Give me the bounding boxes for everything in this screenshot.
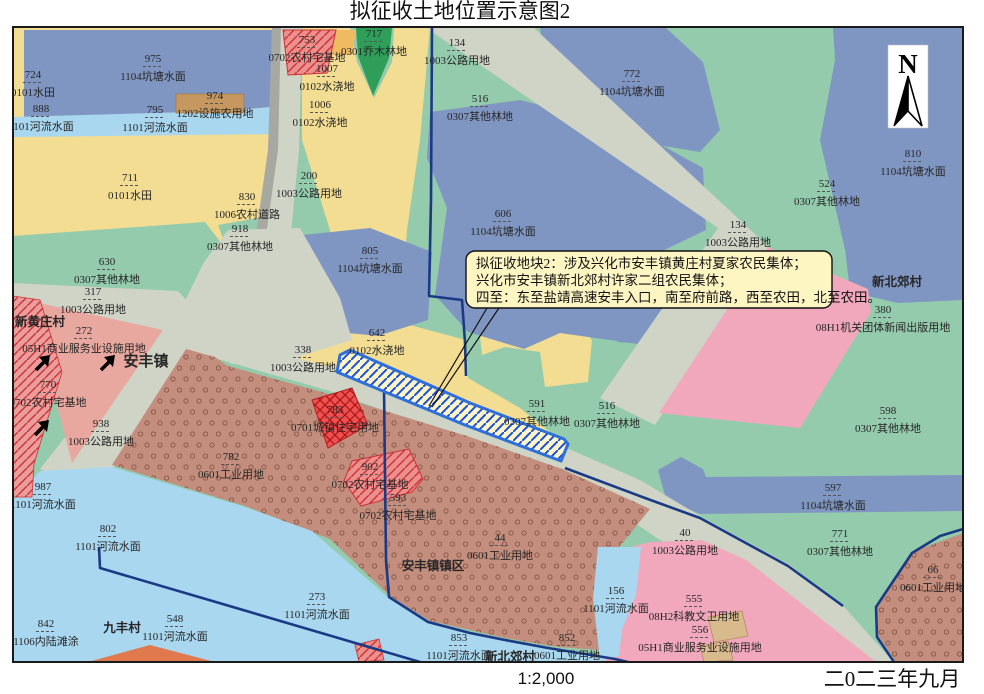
parcel-number: 273 [309, 591, 326, 603]
parcel-landuse: 1101河流水面 [426, 648, 492, 662]
parcel-number: 524 [819, 178, 836, 190]
parcel-landuse: 1106内陆滩涂 [13, 634, 79, 648]
parcel-landuse: 0307其他林地 [447, 109, 513, 123]
parcel-landuse: 0701城镇住宅用地 [291, 420, 379, 434]
parcel-landuse: 0301乔木林地 [341, 44, 407, 58]
parcel-number: 606 [495, 208, 512, 220]
parcel-number: 853 [451, 632, 468, 644]
parcel-landuse: 0102水浇地 [350, 344, 405, 357]
north-arrow: N [888, 45, 928, 128]
parcel-landuse: 1101河流水面 [10, 497, 76, 511]
parcel-landuse: 0601工业用地 [900, 581, 966, 594]
parcel-number: 902 [362, 461, 379, 473]
parcel-number: 810 [905, 148, 922, 160]
parcel-number: 44 [495, 532, 507, 544]
parcel-number: 134 [449, 37, 466, 49]
parcel-number: 888 [33, 103, 50, 115]
parcel-number: 40 [680, 527, 692, 539]
parcel-number: 380 [875, 304, 892, 316]
parcel-number: 783 [327, 404, 344, 416]
parcel-landuse: 1003公路用地 [60, 303, 126, 316]
parcel-landuse: 1104坑塘水面 [800, 498, 866, 512]
parcel-landuse: 08H1机关团体新闻出版用地 [816, 320, 950, 334]
parcel-landuse: 0307其他林地 [794, 194, 860, 208]
parcel-landuse: 1101河流水面 [8, 119, 74, 133]
parcel-landuse: 1202设施农用地 [177, 106, 254, 120]
parcel-landuse: 1003公路用地 [68, 435, 134, 448]
parcel-number: 272 [76, 325, 93, 337]
parcel-landuse: 0307其他林地 [74, 272, 140, 286]
parcel-landuse: 0307其他林地 [504, 414, 570, 428]
parcel-landuse: 1101河流水面 [122, 120, 188, 134]
map-canvas: 拟征收地块2：涉及兴化市安丰镇黄庄村夏家农民集体； 兴化市安丰镇新北郊村许家二组… [0, 0, 984, 694]
parcel-number: 597 [825, 482, 842, 494]
parcel-landuse: 0307其他林地 [855, 421, 921, 435]
parcel-landuse: 1003公路用地 [424, 54, 490, 67]
parcel-landuse: 1104坑塘水面 [337, 261, 403, 275]
parcel-number: 66 [928, 564, 940, 576]
parcel-landuse: 0702农村宅基地 [360, 508, 437, 522]
parcel-landuse: 0601工业用地 [198, 468, 264, 481]
parcel-landuse: 0702农村宅基地 [332, 477, 409, 491]
parcel-number: 598 [880, 405, 897, 417]
parcel-number: 593 [390, 492, 407, 504]
parcel-landuse: 1104坑塘水面 [880, 164, 946, 178]
parcel-number: 516 [599, 400, 616, 412]
map-date: 二0二三年九月 [824, 667, 961, 691]
parcel-number: 782 [223, 451, 240, 463]
parcel-landuse: 1003公路用地 [705, 236, 771, 249]
parcel-number: 842 [38, 618, 55, 630]
parcel-landuse: 0601工业用地 [467, 549, 533, 562]
parcel-landuse: 1104坑塘水面 [120, 69, 186, 83]
parcel-number: 317 [85, 286, 102, 298]
place-name-label: 安丰镇 [123, 352, 168, 370]
parcel-number: 918 [232, 223, 249, 235]
parcel-landuse: 0102水浇地 [300, 80, 355, 93]
parcel-number: 753 [299, 34, 316, 46]
parcel-number: 555 [686, 593, 703, 605]
parcel-landuse: 0307其他林地 [807, 544, 873, 558]
parcel-number: 200 [301, 170, 318, 182]
parcel-number: 156 [608, 585, 625, 597]
parcel-number: 134 [730, 219, 747, 231]
parcel-landuse: 1101河流水面 [284, 607, 350, 621]
parcel-number: 987 [35, 481, 52, 493]
parcel-number: 642 [369, 327, 386, 339]
parcel-number: 724 [25, 69, 42, 81]
parcel-landuse: 1104坑塘水面 [470, 224, 536, 238]
annotation-line-2: 兴化市安丰镇新北郊村许家二组农民集体； [476, 272, 733, 289]
place-name-label: 新北郊村 [872, 274, 923, 289]
parcel-number: 1007 [316, 63, 339, 75]
parcel-landuse: 0307其他林地 [207, 239, 273, 253]
parcel-number: 795 [147, 104, 164, 116]
parcel-number: 802 [100, 523, 117, 535]
annotation-line-3: 四至：东至盐靖高速安丰入口，南至府前路，西至农田，北至农田。 [476, 289, 881, 305]
parcel-number: 711 [122, 172, 138, 184]
parcel-landuse: 0102水浇地 [293, 116, 348, 129]
parcel-landuse: 0702农村宅基地 [269, 50, 346, 64]
place-name-label: 安丰镇镇区 [402, 558, 465, 573]
parcel-landuse: 1101河流水面 [142, 629, 208, 643]
parcel-number: 338 [295, 344, 312, 356]
parcel-landuse: 1104坑塘水面 [599, 84, 665, 98]
parcel-number: 591 [529, 398, 546, 410]
place-name-label: 新黄庄村 [15, 314, 66, 329]
parcel-landuse: 05H1商业服务业设施用地 [22, 341, 145, 355]
parcel-number: 770 [40, 379, 57, 391]
parcel-number: 717 [366, 28, 383, 40]
north-letter: N [898, 49, 918, 79]
parcel-number: 938 [93, 418, 110, 430]
parcel-number: 630 [99, 256, 116, 268]
parcel-landuse: 0702农村宅基地 [10, 395, 87, 409]
parcel-number: 771 [832, 528, 849, 540]
parcel-number: 556 [692, 624, 709, 636]
parcel-landuse: 0101水田 [11, 86, 55, 99]
parcel-landuse: 1101河流水面 [75, 539, 141, 553]
parcel-landuse: 1006农村道路 [214, 207, 280, 221]
map-scale: 1:2,000 [518, 669, 575, 688]
parcel-number: 548 [167, 613, 184, 625]
parcel-number: 516 [472, 93, 489, 105]
parcel-landuse: 08H2科教文卫用地 [649, 609, 739, 623]
parcel-landuse: 0601工业用地 [534, 649, 600, 662]
parcel-landuse: 1003公路用地 [652, 544, 718, 557]
parcel-number: 852 [559, 632, 576, 644]
parcel-number: 974 [207, 90, 224, 102]
map-title: 拟征收土地位置示意图2 [350, 0, 571, 23]
parcel-landuse: 05H1商业服务业设施用地 [638, 640, 761, 654]
parcel-landuse: 0307其他林地 [574, 416, 640, 430]
parcel-number: 830 [239, 191, 256, 203]
parcel-number: 805 [362, 245, 379, 257]
parcel-landuse: 0101水田 [108, 189, 152, 202]
parcel-number: 975 [145, 53, 162, 65]
land-acquisition-map-page: 拟征收地块2：涉及兴化市安丰镇黄庄村夏家农民集体； 兴化市安丰镇新北郊村许家二组… [0, 0, 984, 694]
parcel-landuse: 1101河流水面 [583, 601, 649, 615]
annotation-line-1: 拟征收地块2：涉及兴化市安丰镇黄庄村夏家农民集体； [476, 255, 807, 272]
parcel-landuse: 1003公路用地 [276, 187, 342, 200]
parcel-landuse: 1003公路用地 [270, 361, 336, 374]
parcel-number: 772 [624, 68, 641, 80]
place-name-label: 九丰村 [102, 620, 141, 635]
parcel-number: 1006 [309, 99, 332, 111]
